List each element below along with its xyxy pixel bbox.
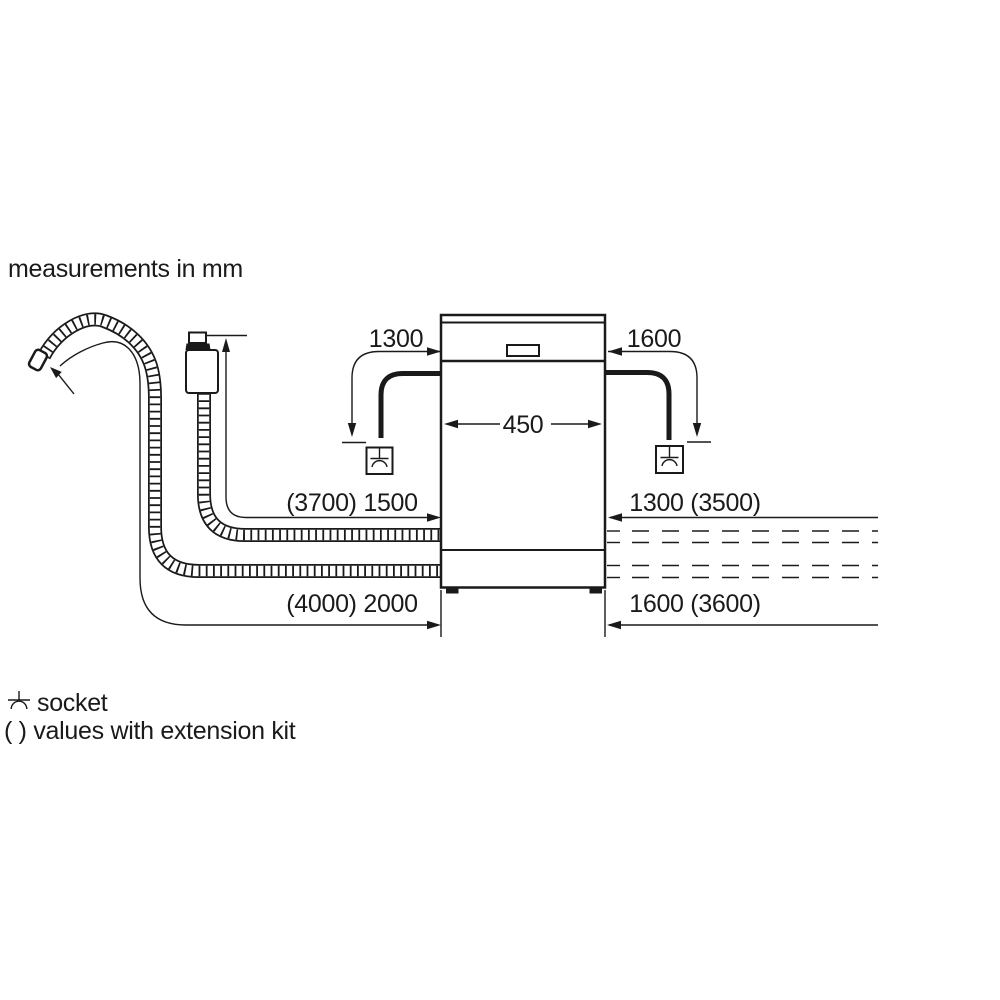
socket-left — [342, 443, 393, 475]
drain-leader-shaft — [58, 374, 74, 394]
legend: socket ( ) values with extension kit — [4, 689, 296, 745]
dimension-cord-right: 1600 — [608, 325, 701, 437]
dimension-supply-right: 1300 (3500) — [608, 489, 878, 522]
arrowhead-left — [607, 621, 621, 629]
arrowhead-right — [427, 513, 441, 521]
tap-connector — [189, 333, 206, 344]
drain-hose-length-leader — [50, 342, 429, 625]
drain-leader-line — [60, 342, 429, 625]
arrowhead-down — [693, 423, 701, 437]
width-label: 450 — [503, 411, 544, 439]
arrowhead-down — [348, 423, 356, 437]
socket-right — [656, 442, 711, 473]
page-title: measurements in mm — [8, 255, 243, 283]
supply-leader-arrowhead — [222, 338, 230, 352]
diagram-canvas: measurements in mm — [0, 0, 1000, 1000]
cord-right-label: 1600 — [627, 325, 681, 353]
left-foot — [446, 588, 459, 594]
legend-extension-note: ( ) values with extension kit — [4, 717, 296, 745]
right-foot — [590, 588, 603, 594]
drain-left-label: (4000) 2000 — [286, 590, 418, 618]
dimension-drain-right: 1600 (3600) — [607, 590, 878, 629]
dimension-cord-left: 1300 — [348, 325, 441, 437]
dishwasher — [441, 315, 605, 637]
arrowhead-right — [427, 347, 441, 355]
cord-left-dim-line — [352, 352, 441, 424]
dimension-supply-left: (3700) 1500 — [286, 489, 441, 522]
power-cord-left — [381, 374, 441, 439]
cord-left-label: 1300 — [369, 325, 423, 353]
arrowhead-left — [608, 347, 622, 355]
installation-diagram: measurements in mm — [0, 0, 1000, 1000]
supply-right-label: 1300 (3500) — [629, 489, 761, 517]
aquastop-valve — [186, 350, 218, 393]
hose-routing-right — [607, 531, 878, 578]
drain-right-label: 1600 (3600) — [629, 590, 761, 618]
socket-icon — [8, 691, 30, 709]
power-cord-right — [605, 373, 669, 441]
arrowhead-right — [427, 621, 441, 629]
drain-hose-end-cap — [28, 349, 48, 372]
legend-socket-label: socket — [37, 689, 108, 717]
dimension-drain-left: (4000) 2000 — [286, 590, 441, 629]
arrowhead-left — [608, 513, 622, 521]
supply-left-label: (3700) 1500 — [286, 489, 418, 517]
door-handle — [507, 345, 539, 356]
cord-right-dim-line — [608, 352, 697, 424]
